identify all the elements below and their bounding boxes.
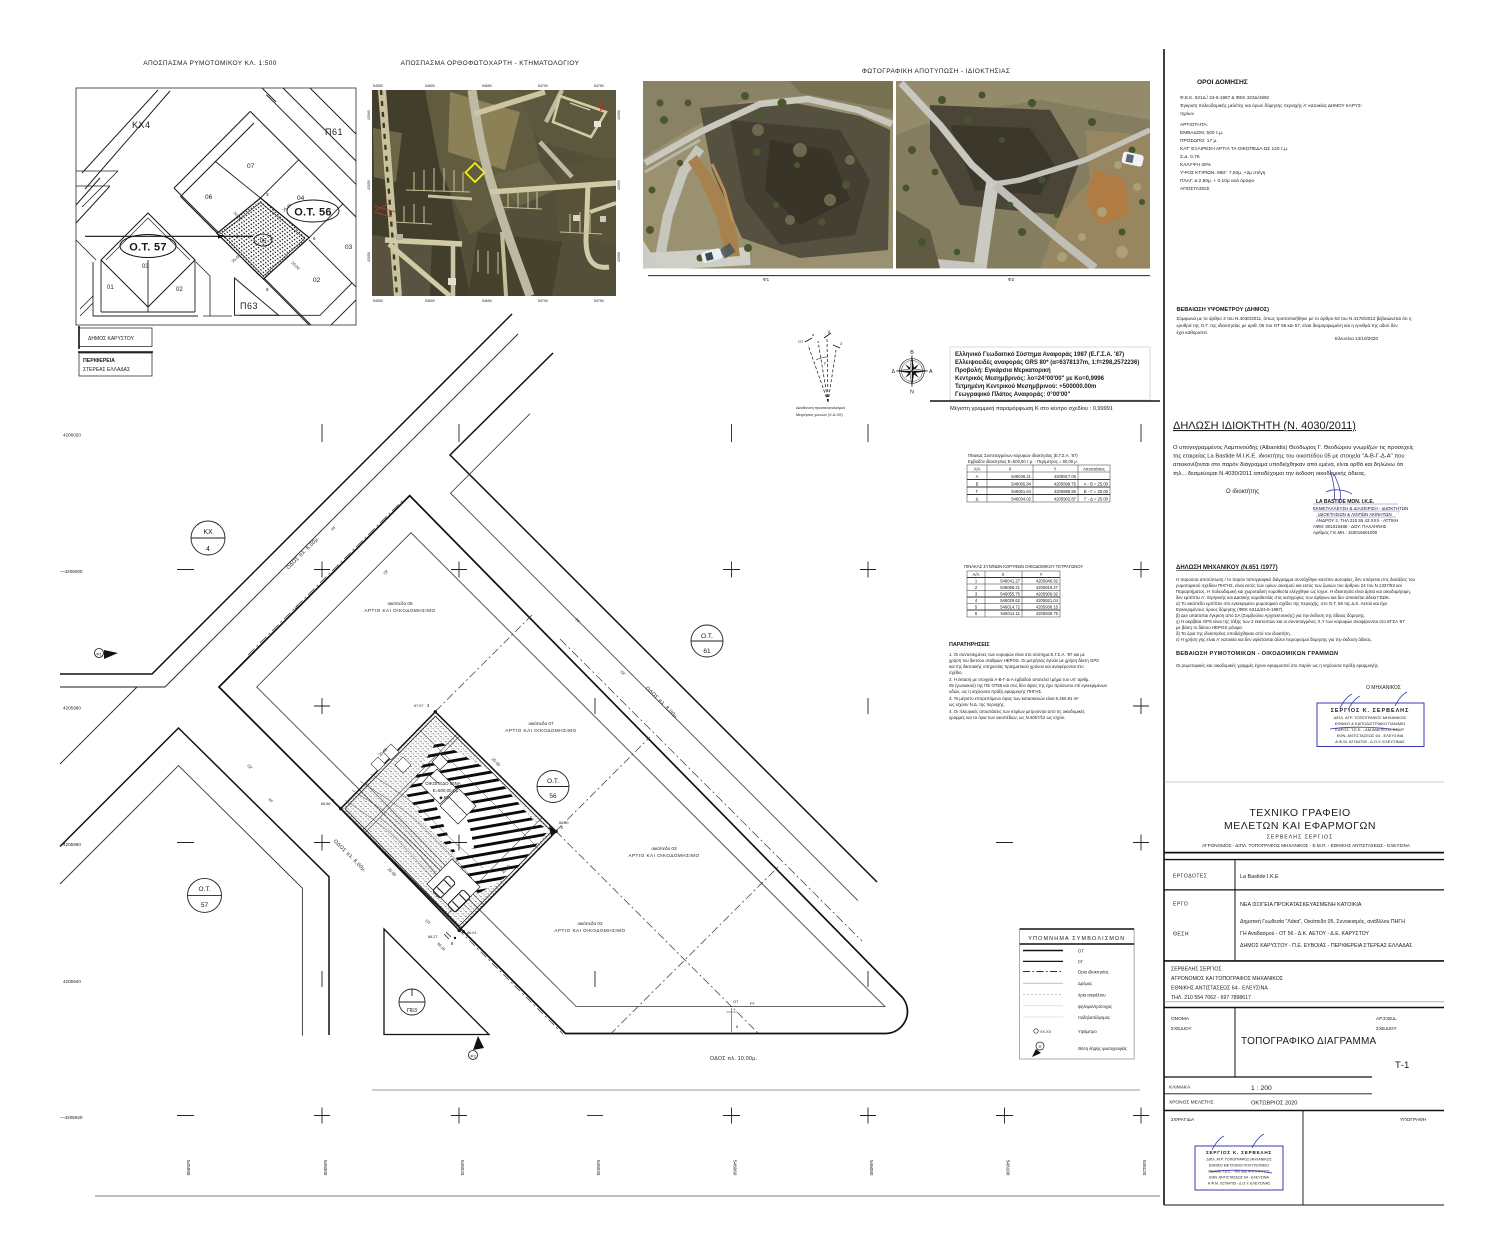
svg-text:ΥΠΟΓΡΑΦΗ: ΥΠΟΓΡΑΦΗ	[1400, 1117, 1427, 1123]
svg-text:ΟΤ: ΟΤ	[733, 999, 739, 1004]
svg-text:ΑΡΤΙΟΤΗΤΑ:: ΑΡΤΙΟΤΗΤΑ:	[1180, 122, 1208, 128]
svg-text:546080: 546080	[869, 1160, 874, 1176]
svg-text:4205936.15: 4205936.15	[1036, 605, 1059, 610]
svg-text:ως ισχύον Ν.Δ. της περιοχής.: ως ισχύον Ν.Δ. της περιοχής.	[949, 702, 1005, 707]
svg-text:Υ: Υ	[1054, 467, 1057, 472]
svg-text:Μέγιστη γραμμική παραμόρφωση Κ: Μέγιστη γραμμική παραμόρφωση Κ στο κέντρ…	[950, 405, 1113, 412]
svg-text:με βάση το δίκτυο HEPOS μόνιμα: με βάση το δίκτυο HEPOS μόνιμα.	[1176, 625, 1243, 630]
svg-text:4205919.27: 4205919.27	[1036, 585, 1059, 590]
svg-text:σχέδιο.: σχέδιο.	[949, 670, 963, 675]
svg-text:απεικονίζονται στο παρόν δι: απεικονίζονται στο παρόν διάγραμμα υποδε…	[1173, 461, 1404, 468]
svg-text:Ο υπογεγραμμένος Λαμπινούδης: Ο υπογεγραμμένος Λαμπινούδης (Albanidis)…	[1173, 444, 1414, 451]
svg-text:και της δικτυακής υπηρεσίας πρ: και της δικτυακής υπηρεσίας πραγματικού …	[949, 664, 1084, 669]
svg-text:ΔΗΛΩΣΗ ΜΗΧΑΝΙΚΟΥ (Ν.651 /1977): ΔΗΛΩΣΗ ΜΗΧΑΝΙΚΟΥ (Ν.651 /1977)	[1176, 565, 1278, 571]
svg-text:Ο.Τ.: Ο.Τ.	[547, 778, 559, 785]
svg-text:ΠΙΝΑΚΑΣ ΣΥΝ/ΝΩΝ ΚΟΡΥΦΩΝ ΟΙΚΟΔΟ: ΠΙΝΑΚΑΣ ΣΥΝ/ΝΩΝ ΚΟΡΥΦΩΝ ΟΙΚΟΔΟΜΙΚΟΥ ΤΕΤΡ…	[964, 564, 1083, 569]
svg-text:οικόπεδο 07: οικόπεδο 07	[528, 720, 553, 726]
svg-text:ΑΠΟΣΠΑΣΜΑ ΡΥΜΟΤΟΜΙΚΟΥ ΚΛ. 1:50: ΑΠΟΣΠΑΣΜΑ ΡΥΜΟΤΟΜΙΚΟΥ ΚΛ. 1:500	[143, 60, 277, 67]
svg-text:Σ.Δ. 0,75: Σ.Δ. 0,75	[1180, 154, 1200, 160]
svg-text:02: 02	[176, 287, 183, 293]
svg-text:ΕΘΝΙΚΟ & ΚΑΠΟΔΙΣΤΡΙΑΚΟ ΠΑΝ/ΜΙΟ: ΕΘΝΙΚΟ & ΚΑΠΟΔΙΣΤΡΙΑΚΟ ΠΑΝ/ΜΙΟ	[1335, 721, 1406, 726]
svg-text:61: 61	[703, 648, 711, 655]
svg-text:ΔΗΜΟΣ ΚΑΡΥΣΤΟΥ - Π.Ε. ΕΥΒΟΙΑΣ: ΔΗΜΟΣ ΚΑΡΥΣΤΟΥ - Π.Ε. ΕΥΒΟΙΑΣ - ΠΕΡΙΦΕΡΕ…	[1240, 943, 1412, 949]
svg-text:546014.72: 546014.72	[1000, 605, 1020, 610]
svg-text:546055.75: 546055.75	[1000, 592, 1020, 597]
svg-text:05 (γωνιακού) της ΠΕ ΟΤ56 και: 05 (γωνιακού) της ΠΕ ΟΤ56 και στις δύο ό…	[949, 683, 1107, 688]
svg-text:54750: 54750	[594, 299, 604, 303]
svg-text:ΠΑΡΑΤΗΡΗΣΕΙΣ: ΠΑΡΑΤΗΡΗΣΕΙΣ	[949, 642, 990, 648]
svg-text:ΒΕΒΑΙΩΣΗ ΥΨΟΜΕΤΡΟΥ (ΔΗΜΟΣ): ΒΕΒΑΙΩΣΗ ΥΨΟΜΕΤΡΟΥ (ΔΗΜΟΣ)	[1177, 307, 1270, 313]
svg-text:ΣΕΡΒΕΛΗΣ ΣΕΡΓΙΟΣ: ΣΕΡΒΕΛΗΣ ΣΕΡΓΙΟΣ	[1171, 967, 1222, 973]
svg-text:ΚΛΙΜΑΚΑ: ΚΛΙΜΑΚΑ	[1169, 1085, 1191, 1091]
svg-text:ΡΓ: ΡΓ	[1078, 959, 1084, 964]
svg-text:◆ 68: ◆ 68	[439, 795, 449, 800]
svg-text:της εταιρείας La Bastide Μ: της εταιρείας La Bastide Μ.Ι.Κ.Ε. ιδιοκτ…	[1173, 453, 1405, 460]
svg-text:56: 56	[549, 793, 557, 800]
svg-text:ΑΡΤΙΟ ΚΑΙ ΟΙΚΟΔΟΜΗΣΙΜΟ: ΑΡΤΙΟ ΚΑΙ ΟΙΚΟΔΟΜΗΣΙΜΟ	[364, 608, 435, 613]
svg-text:54550: 54550	[373, 84, 383, 88]
svg-text:42059: 42059	[617, 180, 621, 190]
svg-text:Εμβαδόν ιδιοκτησίας Ε=500,00 τ: Εμβαδόν ιδιοκτησίας Ε=500,00 τ.μ. - Περί…	[968, 459, 1078, 464]
svg-text:4205938.75: 4205938.75	[1036, 611, 1059, 616]
svg-text:ΔΙΠΛ. ΑΓΡ. ΤΟΠΟΓΡΑΦΟΣ ΜΗΧΑΝΙΚΟ: ΔΙΠΛ. ΑΓΡ. ΤΟΠΟΓΡΑΦΟΣ ΜΗΧΑΝΙΚΟΣ	[1206, 1158, 1272, 1162]
svg-text:Φ1: Φ1	[763, 277, 770, 282]
svg-text:42058: 42058	[617, 252, 621, 262]
svg-text:ΦΩΤΟΓΡΑΦΙΚΗ ΑΠΟΤΥΠΩΣΗ - ΙΔΙΟΚΤ: ΦΩΤΟΓΡΑΦΙΚΗ ΑΠΟΤΥΠΩΣΗ - ΙΔΙΟΚΤΗΣΙΑΣ	[862, 68, 1011, 75]
svg-text:β) Δεν απαιτείται έγκριση από: β) Δεν απαιτείται έγκριση από ΣΑ (Συμβού…	[1176, 613, 1365, 618]
svg-text:67.97: 67.97	[414, 704, 424, 708]
svg-text:546041.27: 546041.27	[1000, 579, 1020, 584]
svg-text:546120: 546120	[1142, 1160, 1147, 1176]
svg-text:Φ2: Φ2	[1008, 277, 1015, 282]
svg-text:Κεντρικός Μεσημβρινός: λο=24°0: Κεντρικός Μεσημβρινός: λο=24°00'00" με Κ…	[955, 376, 1105, 382]
svg-text:ΑΓΡΟΝΟΜΟΣ - ΔΙΠΛ. ΤΟΠΟΓΡΑΦΟΣ: ΑΓΡΟΝΟΜΟΣ - ΔΙΠΛ. ΤΟΠΟΓΡΑΦΟΣ ΜΗΧΑΝΙΚΟΣ -…	[1202, 843, 1411, 848]
svg-text:ΕΘΝ. ΑΝΤΙΣΤΑΣΕΩΣ 64 - ΕΛΕΥΣΙΝΑ: ΕΘΝ. ΑΝΤΙΣΤΑΣΕΩΣ 64 - ΕΛΕΥΣΙΝΑ	[1337, 733, 1404, 738]
svg-text:4205885.56: 4205885.56	[1054, 489, 1077, 494]
svg-text:ΣΧΕΔΙΟΥ: ΣΧΕΔΙΟΥ	[1376, 1026, 1397, 1032]
svg-text:Φ2: Φ2	[470, 1054, 476, 1059]
svg-text:ΟΡΟΙ ΔΟΜΗΣΗΣ: ΟΡΟΙ ΔΟΜΗΣΗΣ	[1197, 79, 1248, 86]
svg-text:—4206000: —4206000	[60, 569, 83, 574]
svg-text:54750: 54750	[594, 84, 604, 88]
svg-text:όρια ασφάλτου: όρια ασφάλτου	[1078, 993, 1106, 998]
svg-text:54650: 54650	[482, 299, 492, 303]
svg-text:τηλ... δεσμεύομαι Ν.4030/201: τηλ... δεσμεύομαι Ν.4030/2011 αποδέχομαι…	[1173, 470, 1367, 477]
svg-text:4205946.92: 4205946.92	[1036, 579, 1059, 584]
svg-text:ΚΑΛΥΨΗ 40%: ΚΑΛΥΨΗ 40%	[1180, 162, 1212, 168]
svg-text:Τετμημένη Κεντρικού Μεσημβρινο: Τετμημένη Κεντρικού Μεσημβρινού: +500000…	[955, 384, 1096, 390]
svg-text:ΚΑΤ' ΕΞΑΙΡΕΣΗ ΑΡΤΙΑ ΤΑ ΟΙΚΟΠΕΔ: ΚΑΤ' ΕΞΑΙΡΕΣΗ ΑΡΤΙΑ ΤΑ ΟΙΚΟΠΕΔΑ ΩΣ 120 τ…	[1180, 146, 1288, 152]
svg-text:03: 03	[142, 264, 149, 270]
svg-text:4: 4	[206, 546, 210, 553]
svg-text:Ν: Ν	[910, 390, 914, 396]
svg-text:ΑΡΤΙΟ ΚΑΙ ΟΙΚΟΔΟΜΗΣΙΜΟ: ΑΡΤΙΟ ΚΑΙ ΟΙΚΟΔΟΜΗΣΙΜΟ	[505, 728, 576, 733]
svg-text:ΧΡΟΝΟΣ ΜΕΛΕΤΗΣ: ΧΡΟΝΟΣ ΜΕΛΕΤΗΣ	[1169, 1100, 1214, 1106]
svg-text:Προβολή: Εγκάρσια Μερκατορική: Προβολή: Εγκάρσια Μερκατορική	[955, 368, 1051, 374]
svg-text:Διεύθυνση προσανατολισμού: Διεύθυνση προσανατολισμού	[796, 406, 845, 410]
svg-text:3. Το μέγιστο επιτρεπόμ: 3. Το μέγιστο επιτρεπόμενο ύψος των κατα…	[949, 696, 1079, 701]
svg-text:57: 57	[201, 902, 209, 909]
svg-text:τηρίων: τηρίων	[1180, 111, 1195, 116]
svg-text:Χ: Χ	[1009, 467, 1012, 472]
svg-text:ΕΘΝΙΚΟ ΜΕΤΣΟΒΙΟ ΠΟΛΥΤΕΧΝΕΙΟ: ΕΘΝΙΚΟ ΜΕΤΣΟΒΙΟ ΠΟΛΥΤΕΧΝΕΙΟ	[1209, 1164, 1269, 1168]
svg-text:Φ1: Φ1	[96, 652, 102, 657]
svg-text:ΟΤ: ΟΤ	[1078, 949, 1084, 954]
svg-text:Πίνακας Συντεταγμένων κορυφών: Πίνακας Συντεταγμένων κορυφών ιδιοκτησία…	[968, 453, 1078, 458]
svg-text:4205940: 4205940	[63, 979, 81, 984]
svg-text:χρήση του δικτύου σταθμών HEPO: χρήση του δικτύου σταθμών HEPOS. Οι μετρ…	[949, 658, 1099, 663]
svg-text:Β: Β	[976, 482, 979, 487]
svg-text:4205906.92: 4205906.92	[1036, 592, 1059, 597]
svg-text:ΠΛΑΓ. Δ 2,50μ. + 0,10μ ανά όρο: ΠΛΑΓ. Δ 2,50μ. + 0,10μ ανά όροφο	[1180, 177, 1254, 184]
svg-text:Μετρήσεις γωνιών (Χ.Α.ΧΧ): Μετρήσεις γωνιών (Χ.Α.ΧΧ)	[796, 413, 843, 417]
svg-text:54700: 54700	[538, 84, 548, 88]
svg-text:ΝΕΑ ΙΣΟΓΕΙΑ ΠΡΟΚΑΤΑΣΚΕΥΑΣΜΕΝΗ: ΝΕΑ ΙΣΟΓΕΙΑ ΠΡΟΚΑΤΑΣΚΕΥΑΣΜΕΝΗ ΚΑΤΟΙΚΙΑ	[1240, 902, 1362, 908]
svg-text:ΣΦΡΑΓΙΔΑ: ΣΦΡΑΓΙΔΑ	[1171, 1117, 1195, 1123]
svg-text:Π61: Π61	[325, 127, 343, 137]
svg-text:06: 06	[205, 194, 213, 201]
svg-text:42058: 42058	[367, 252, 371, 262]
svg-text:Α/Α: Α/Α	[973, 572, 980, 577]
svg-text:54600: 54600	[425, 299, 435, 303]
svg-text:Ελλειψοειδές αναφοράς GRS 80*: Ελλειψοειδές αναφοράς GRS 80* (α=6378137…	[955, 360, 1139, 366]
svg-text:546012.11: 546012.11	[1001, 611, 1021, 616]
svg-text:ΓΗ Αναδασμού - ΟΤ 56 - Δ.Κ.: ΓΗ Αναδασμού - ΟΤ 56 - Δ.Κ. ΑΕΤΟΥ - Δ.Ε.…	[1240, 931, 1370, 937]
svg-text:02: 02	[313, 277, 321, 284]
svg-text:ΑΓΡΟΝΟΜΟΣ ΚΑΙ ΤΟΠΟΓΡΑΦΟΣ ΜΗΧΑΝ: ΑΓΡΟΝΟΜΟΣ ΚΑΙ ΤΟΠΟΓΡΑΦΟΣ ΜΗΧΑΝΙΚΟΣ	[1171, 976, 1283, 982]
svg-text:66.01: 66.01	[467, 931, 477, 935]
svg-text:Β - Γ = 20.00: Β - Γ = 20.00	[1084, 489, 1109, 494]
svg-text:546065.84: 546065.84	[1011, 482, 1031, 487]
svg-text:ΘΕΣΗ: ΘΕΣΗ	[1173, 932, 1189, 938]
svg-text:ΒΕΒΑΙΩΣΗ ΡΥΜΟΤΟΜΙΚΩΝ - ΟΙΚΟΔΟΜ: ΒΕΒΑΙΩΣΗ ΡΥΜΟΤΟΜΙΚΩΝ - ΟΙΚΟΔΟΜΙΚΩΝ ΓΡΑΜΜ…	[1176, 651, 1338, 657]
svg-text:546040: 546040	[596, 1160, 601, 1176]
svg-text:4205921.04: 4205921.04	[1036, 598, 1059, 603]
svg-text:3: 3	[840, 342, 842, 346]
svg-text:ε) Η χρήση γης είναι Α' κατοικ: ε) Η χρήση γης είναι Α' κατοικία και δεν…	[1176, 637, 1372, 642]
svg-text:Α - Β = 25.00: Α - Β = 25.00	[1084, 482, 1109, 487]
svg-text:546034.02: 546034.02	[1011, 497, 1031, 502]
svg-text:Όρια ιδιοκτησίας: Όρια ιδιοκτησίας	[1077, 970, 1109, 975]
svg-text:54600: 54600	[425, 84, 435, 88]
svg-text:545980: 545980	[186, 1160, 191, 1176]
svg-text:ΔΗΛΩΣΗ ΙΔΙΟΚΤΗΤΗ (Ν. 4030/2011: ΔΗΛΩΣΗ ΙΔΙΟΚΤΗΤΗ (Ν. 4030/2011)	[1173, 420, 1356, 432]
svg-text:Γ - Δ = 25.00: Γ - Δ = 25.00	[1084, 497, 1108, 502]
svg-text:546051.64: 546051.64	[1011, 489, 1031, 494]
svg-text:Σύμφωνα με το άρθρο 3 του Ν.40: Σύμφωνα με το άρθρο 3 του Ν.4030/2011, ό…	[1177, 315, 1412, 321]
svg-text:546048.21: 546048.21	[1011, 474, 1031, 479]
svg-text:ΣΕΡΓΙΟΣ Κ. ΣΕΡΒΕΛΗΣ: ΣΕΡΓΙΟΣ Κ. ΣΕΡΒΕΛΗΣ	[1206, 1150, 1272, 1155]
svg-text:δεν εμπίπτει Α'. Ειρηνικής και: δεν εμπίπτει Α'. Ειρηνικής και Δασικής ν…	[1176, 595, 1390, 600]
svg-text:546020: 546020	[460, 1160, 465, 1176]
svg-text:546100: 546100	[1006, 1160, 1011, 1176]
svg-text:ΑΡΤΙΟ ΚΑΙ ΟΙΚΟΔΟΜΗΣΙΜΟ: ΑΡΤΙΟ ΚΑΙ ΟΙΚΟΔΟΜΗΣΙΜΟ	[554, 928, 625, 933]
svg-text:ΟΚΤΩΒΡΙΟΣ 2020: ΟΚΤΩΒΡΙΟΣ 2020	[1251, 1101, 1297, 1107]
svg-text:Ο.Τ. 57: Ο.Τ. 57	[129, 242, 167, 254]
svg-text:01: 01	[107, 285, 114, 291]
svg-text:οικόπεδο 02: οικόπεδο 02	[577, 920, 602, 926]
svg-text:4. Οι πλευρικές αποστάσ: 4. Οι πλευρικές αποστάσεις των κτιρίων μ…	[949, 709, 1085, 714]
svg-text:Ελευσίνα 13/10/2020: Ελευσίνα 13/10/2020	[1335, 336, 1378, 341]
svg-text:Παραρτήματος. Η πολεοδομική κα: Παραρτήματος. Η πολεοδομική και χωροταξι…	[1176, 589, 1411, 594]
svg-text:ΔΙΠΛ. ΑΓΡ. ΤΟΠΟΓΡΑΦΟΣ ΜΗΧΑΝΙΚΟ: ΔΙΠΛ. ΑΓΡ. ΤΟΠΟΓΡΑΦΟΣ ΜΗΧΑΝΙΚΟΣ	[1334, 715, 1407, 720]
svg-text:ΠΕΡΙΦΕΡΕΙΑ: ΠΕΡΙΦΕΡΕΙΑ	[83, 358, 115, 364]
svg-text:ΣΤΕΡΕΑΣ ΕΛΛΑΔΑΣ: ΣΤΕΡΕΑΣ ΕΛΛΑΔΑΣ	[83, 367, 130, 373]
svg-text:ρυμοτομικού σχεδίου ΠΗΓΗΣ, είν: ρυμοτομικού σχεδίου ΠΗΓΗΣ, είναι εκτός τ…	[1176, 583, 1402, 588]
svg-text:ΟΙΚΟΠΕΔΟ 05ΝΑ: ΟΙΚΟΠΕΔΟ 05ΝΑ	[425, 781, 460, 786]
svg-text:66.30: 66.30	[559, 821, 569, 825]
svg-text:ΙΔΙΟΚΤΗΣΙΩΝ & ΛΟΙΠΩΝ ΑΚΙΝΗΤΩΝ: ΙΔΙΟΚΤΗΣΙΩΝ & ΛΟΙΠΩΝ ΑΚΙΝΗΤΩΝ	[1318, 512, 1392, 517]
svg-text:ΥΠΟΜΝΗΜΑ ΣΥΜΒΟΛΙΣΜΩΝ: ΥΠΟΜΝΗΜΑ ΣΥΜΒΟΛΙΣΜΩΝ	[1028, 936, 1125, 942]
svg-text:ΣΧΕΔΙΟΥ: ΣΧΕΔΙΟΥ	[1171, 1026, 1192, 1032]
svg-text:66.86: 66.86	[321, 802, 331, 806]
svg-text:03: 03	[345, 244, 353, 251]
svg-text:ΕΘΝ. ΑΝΤΙΣΤΑΣΕΩΣ 64 - ΕΛΕΥΣΙΝΑ: ΕΘΝ. ΑΝΤΙΣΤΑΣΕΩΣ 64 - ΕΛΕΥΣΙΝΑ	[1209, 1176, 1269, 1180]
svg-text:ΚΧ: ΚΧ	[203, 529, 213, 536]
svg-text:γ) Η ακρίβεια GPS είναι της τά: γ) Η ακρίβεια GPS είναι της τάξης των 2 …	[1176, 619, 1405, 624]
svg-text:ΡΓ: ΡΓ	[750, 1001, 756, 1006]
svg-text:42059: 42059	[367, 180, 371, 190]
svg-text:Ο.Τ. 56: Ο.Τ. 56	[294, 207, 332, 219]
svg-text:ΕΘΝΙΚΗΣ ΑΝΤΙΣΤΑΣΕΩΣ 64 - ΕΛΕΥΣ: ΕΘΝΙΚΗΣ ΑΝΤΙΣΤΑΣΕΩΣ 64 - ΕΛΕΥΣΙΝΑ	[1171, 986, 1268, 992]
svg-text:546068.21: 546068.21	[1000, 585, 1020, 590]
svg-text:Φ: Φ	[1039, 1045, 1042, 1049]
svg-text:ΤΗΛ. 210 554 7062 - 697 789861: ΤΗΛ. 210 554 7062 - 697 7898617	[1171, 995, 1251, 1001]
svg-text:4205960: 4205960	[63, 842, 81, 847]
svg-text:γραμμές και τα όρια των οικοπέ: γραμμές και τα όρια των οικοπέδων, ως Ν.…	[949, 715, 1066, 720]
svg-text:Π63: Π63	[240, 301, 258, 311]
svg-text:ΑΠΟΣΠΑΣΜΑ ΟΡΘΟΦΩΤΟΧΑΡΤΗ - ΚΤΗΜ: ΑΠΟΣΠΑΣΜΑ ΟΡΘΟΦΩΤΟΧΑΡΤΗ - ΚΤΗΜΑΤΟΛΟΓΙΟΥ	[401, 60, 580, 67]
svg-text:ΑΡΤΙΟ ΚΑΙ ΟΙΚΟΔΟΜΗΣΙΜΟ: ΑΡΤΙΟ ΚΑΙ ΟΙΚΟΔΟΜΗΣΙΜΟ	[628, 853, 699, 858]
svg-text:ΕΡΓΟΔΟΤΕΣ: ΕΡΓΟΔΟΤΕΣ	[1173, 874, 1207, 880]
svg-text:ΚΧ4: ΚΧ4	[132, 120, 151, 130]
svg-text:Ο ιδιοκτήτης: Ο ιδιοκτήτης	[1226, 488, 1259, 495]
svg-text:Α: Α	[976, 474, 979, 479]
svg-text:Α.Φ.Μ. 02764705 - Δ.Ο.Υ. ΕΛΕΥΣ: Α.Φ.Μ. 02764705 - Δ.Ο.Υ. ΕΛΕΥΣΙΝΑΣ	[1208, 1182, 1271, 1186]
svg-text:Υ: Υ	[1040, 572, 1043, 577]
svg-text:05: 05	[260, 239, 266, 245]
svg-text:2. Η έκταση με στοιχεία: 2. Η έκταση με στοιχεία Α-Β-Γ-Δ-Α εμβαδο…	[949, 677, 1090, 682]
svg-text:Αριθμός Γ.Ε.ΜΗ.: 153016601000: Αριθμός Γ.Ε.ΜΗ.: 153016601000	[1313, 530, 1378, 535]
svg-text:Ελληνικό Γεωδαιτικό Σύστημα Αν: Ελληνικό Γεωδαιτικό Σύστημα Αναφοράς 198…	[955, 352, 1124, 358]
svg-text:Π63: Π63	[407, 1008, 417, 1014]
svg-text:Χ: Χ	[1002, 572, 1005, 577]
svg-text:546000: 546000	[323, 1160, 328, 1176]
svg-text:ΟΔΟΣ πλ. 10,00μ.: ΟΔΟΣ πλ. 10,00μ.	[710, 1056, 757, 1062]
svg-text:Υψόμετρο: Υψόμετρο	[1078, 1029, 1097, 1034]
svg-text:γ: γ	[824, 361, 826, 365]
svg-text:ΑΝΔΡΟΥ 3, ΤΗΛ 210 55 43 ΧΧΧ -: ΑΝΔΡΟΥ 3, ΤΗΛ 210 55 43 ΧΧΧ - ΑΤΤΙΚΗ	[1316, 518, 1398, 523]
svg-text:ΠΡΟΣΩΠΟ: 17 μ.: ΠΡΟΣΩΠΟ: 17 μ.	[1180, 138, 1218, 144]
svg-text:οικόπεδο 06: οικόπεδο 06	[387, 600, 412, 606]
svg-text:4205899.75: 4205899.75	[1054, 482, 1077, 487]
svg-text:Οι ρυμοτομικές και οικοδομικές: Οι ρυμοτομικές και οικοδομικές γραμμές έ…	[1176, 663, 1379, 668]
svg-text:546029.62: 546029.62	[1000, 598, 1020, 603]
svg-text:Β: Β	[910, 350, 914, 356]
svg-text:Α.Φ.Μ. 02764705 - Δ.Ο.Υ. ΕΛΕΥΣ: Α.Φ.Μ. 02764705 - Δ.Ο.Υ. ΕΛΕΥΣΙΝΑΣ	[1335, 739, 1405, 744]
svg-text:54550: 54550	[373, 299, 383, 303]
svg-text:ΣΕΡΓΙΟΣ Κ. ΣΕΡΒΕΛΗΣ: ΣΕΡΓΙΟΣ Κ. ΣΕΡΒΕΛΗΣ	[1331, 708, 1410, 714]
svg-text:ΟΝΟΜΑ: ΟΝΟΜΑ	[1171, 1016, 1190, 1022]
svg-text:1 : 200: 1 : 200	[1251, 1085, 1272, 1092]
svg-text:4205917.06: 4205917.06	[1054, 474, 1077, 479]
svg-text:07: 07	[247, 163, 255, 170]
svg-text:42060: 42060	[617, 110, 621, 120]
svg-text:έχει καθοριστεί.: έχει καθοριστεί.	[1177, 329, 1208, 335]
svg-text:δ) Τα όρια της ιδιοκτησίας υπο: δ) Τα όρια της ιδιοκτησίας υποδείχθηκαν …	[1176, 631, 1291, 636]
svg-text:546060: 546060	[733, 1160, 738, 1176]
svg-text:Ο.Τ.: Ο.Τ.	[701, 633, 713, 640]
svg-text:1. Οι συντεταγμένες των: 1. Οι συντεταγμένες των κορυφών είναι στ…	[949, 652, 1085, 657]
svg-text:ΤΟΠΟΓΡΑΦΙΚΟ ΔΙΑΓΡΑΜΜΑ: ΤΟΠΟΓΡΑΦΙΚΟ ΔΙΑΓΡΑΜΜΑ	[1241, 1036, 1377, 1047]
svg-text:ψηλομαντρότοιχος: ψηλομαντρότοιχος	[1078, 1004, 1112, 1009]
svg-text:ΕΚΜΕΤΑΛΛΕΥΣΗ & ΔΙΑΧΕΙΡΙΣΗ - ΙΔ: ΕΚΜΕΤΑΛΛΕΥΣΗ & ΔΙΑΧΕΙΡΙΣΗ - ΙΔΙΟΚΤΗΤΩΝ	[1313, 506, 1408, 511]
svg-text:Έγκριση πολεοδομικής μελέτης κ: Έγκριση πολεοδομικής μελέτης και όρων δό…	[1179, 102, 1363, 108]
svg-text:Αποστάσεις: Αποστάσεις	[1083, 467, 1105, 472]
svg-text:66.27: 66.27	[428, 935, 438, 939]
svg-text:Α: Α	[929, 369, 933, 375]
svg-text:ΟΤ: ΟΤ	[798, 340, 804, 344]
svg-text:Τ-1: Τ-1	[1395, 1060, 1409, 1071]
svg-text:4206020: 4206020	[63, 433, 81, 438]
svg-text:La Bastide Ι.Κ.Ε: La Bastide Ι.Κ.Ε	[1240, 874, 1279, 880]
svg-text:Ο ΜΗΧΑΝΙΚΟΣ: Ο ΜΗΧΑΝΙΚΟΣ	[1366, 685, 1401, 691]
svg-text:ΑΦΜ: 801019485 - ΔΟΥ: ΠΑΛΛΗΝΗΣ: ΑΦΜ: 801019485 - ΔΟΥ: ΠΑΛΛΗΝΗΣ	[1313, 524, 1387, 529]
svg-text:οικόπεδο 03: οικόπεδο 03	[651, 845, 676, 851]
svg-text:ΕΡΓΟ: ΕΡΓΟ	[1173, 902, 1188, 908]
svg-text:ΑΠΟΣΤΑΣΕΙΣ: ΑΠΟΣΤΑΣΕΙΣ	[1180, 186, 1210, 192]
svg-text:ΥΨΟΣ ΚΤΙΡΙΩΝ: ΜΕΓ. 7,50μ. +2μ: ΥΨΟΣ ΚΤΙΡΙΩΝ: ΜΕΓ. 7,50μ. +2μ στέγη	[1180, 169, 1266, 176]
svg-text:Δημοτική Γεωθεσία "Λάκα",: Δημοτική Γεωθεσία "Λάκα", Οικόπεδο 05, Σ…	[1240, 918, 1405, 925]
svg-text:42060: 42060	[367, 110, 371, 120]
svg-text:Δ: Δ	[891, 369, 895, 375]
svg-text:54650: 54650	[482, 84, 492, 88]
svg-text:Εγκεκριμένους όρους δόμησης (Φ: Εγκεκριμένους όρους δόμησης (ΦΕΚ 621Δ/24…	[1176, 607, 1284, 612]
svg-text:ερυθρά της Ο.Γ. της ιδιοκτησία: ερυθρά της Ο.Γ. της ιδιοκτησίας με αριθ.…	[1177, 322, 1399, 328]
svg-text:4205980: 4205980	[63, 706, 81, 711]
svg-text:—4205920: —4205920	[60, 1115, 83, 1120]
svg-text:ΣΕΡΒΕΛΗΣ ΣΕΡΓΙΟΣ: ΣΕΡΒΕΛΗΣ ΣΕΡΓΙΟΣ	[1267, 835, 1334, 841]
svg-text:ΜΕΛΕΤΩΝ ΚΑΙ ΕΦΑΡΜΟΓΩΝ: ΜΕΛΕΤΩΝ ΚΑΙ ΕΦΑΡΜΟΓΩΝ	[1224, 820, 1376, 832]
svg-text:Θέση λήψης φωτογραφίας: Θέση λήψης φωτογραφίας	[1078, 1046, 1127, 1051]
svg-text:Ε=500,00 τ.μ.: Ε=500,00 τ.μ.	[433, 788, 460, 793]
svg-text:ΧΧ.ΧΧ: ΧΧ.ΧΧ	[1040, 1030, 1052, 1034]
svg-text:ποδηλατόδρομος: ποδηλατόδρομος	[1078, 1015, 1110, 1020]
svg-text:Δρόμος: Δρόμος	[1078, 981, 1092, 986]
svg-text:54700: 54700	[538, 299, 548, 303]
svg-text:α) Το οικόπεδο εμπίπτει στο εγ: α) Το οικόπεδο εμπίπτει στο εγκεκριμένο …	[1176, 601, 1387, 606]
svg-text:ΔΗΜΟΣ ΚΑΡΥΣΤΟΥ: ΔΗΜΟΣ ΚΑΡΥΣΤΟΥ	[88, 336, 135, 342]
svg-text:ΤΕΧΝΙΚΟ ΓΡΑΦΕΙΟ: ΤΕΧΝΙΚΟ ΓΡΑΦΕΙΟ	[1249, 807, 1350, 819]
svg-text:Δ: Δ	[976, 497, 979, 502]
svg-text:Η παρούσα αποτύπωση / το παρόν: Η παρούσα αποτύπωση / το παρόν τοπογραφι…	[1176, 577, 1416, 582]
svg-text:οδών, ως η ισχύουσα πράξη εφαρ: οδών, ως η ισχύουσα πράξη εφαρμογής ΠΗΓΗ…	[949, 689, 1042, 694]
svg-text:ΑΡ.ΣΧΕΔ.: ΑΡ.ΣΧΕΔ.	[1376, 1016, 1397, 1022]
svg-text:ΕΜΒΑΔΟΝ: 500 τ.μ.: ΕΜΒΑΔΟΝ: 500 τ.μ.	[1180, 130, 1223, 136]
svg-text:4205902.87: 4205902.87	[1054, 497, 1077, 502]
svg-text:Α/Α: Α/Α	[974, 467, 981, 472]
svg-text:Ο.Τ.: Ο.Τ.	[199, 886, 211, 893]
svg-text:Φ.Ε.Κ. 621Δ / 24-6-1987 & ΦΕΚ: Φ.Ε.Κ. 621Δ / 24-6-1987 & ΦΕΚ 323Δ/1992	[1180, 95, 1270, 100]
svg-text:Γεωγραφικό Πλάτος Αναφοράς: 0°: Γεωγραφικό Πλάτος Αναφοράς: 0°00'00"	[955, 392, 1071, 398]
